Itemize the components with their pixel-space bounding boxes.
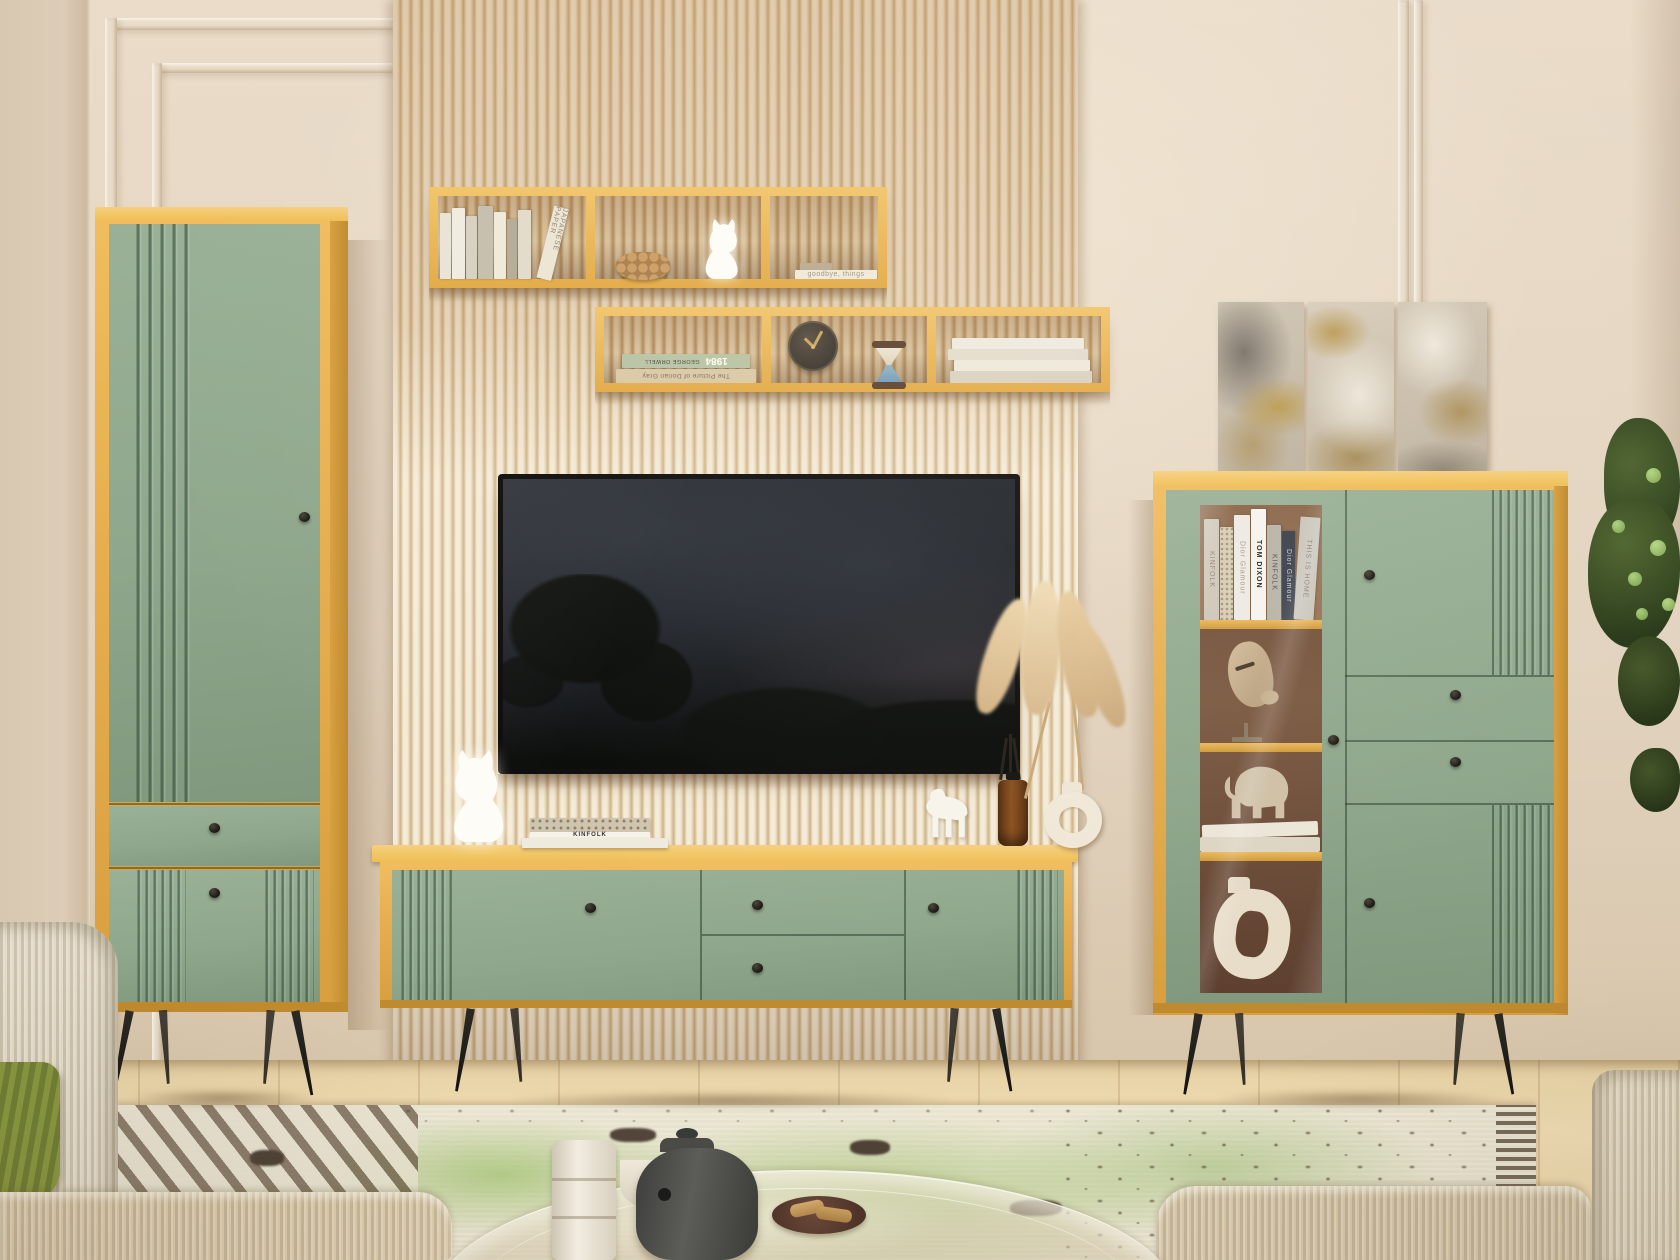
diffuser-bottle (998, 780, 1028, 846)
wall-molding (1414, 0, 1423, 305)
wooden-bead-ball (616, 252, 670, 280)
drawer-flutes (134, 870, 186, 1002)
shelf-shadow (429, 288, 887, 302)
bench-base (380, 1000, 1072, 1008)
display-cabinet-top (1153, 471, 1568, 486)
diffuser-cap (1006, 772, 1020, 780)
book-spine (452, 208, 465, 279)
cat-lamp (436, 744, 514, 848)
floor-shadow (420, 1088, 1040, 1112)
green-knit-throw (0, 1062, 60, 1200)
tall-cabinet-top (95, 207, 348, 221)
book-title: The Picture of Dorian Gray (642, 373, 730, 380)
flat-book (800, 263, 832, 270)
teapot-spout-hole (658, 1188, 671, 1201)
book-title: 1984 (706, 356, 728, 367)
book-spine (440, 213, 451, 279)
cup-stack (552, 1140, 616, 1260)
wall-molding (105, 18, 393, 30)
teapot (636, 1148, 758, 1260)
door-flutes (1496, 490, 1552, 675)
art-panel (1398, 302, 1487, 471)
tv-screen-reflection (503, 479, 1015, 769)
seam (1345, 740, 1554, 742)
display-cabinet-side (1554, 486, 1568, 1015)
book (522, 838, 668, 848)
rug-motif (850, 1140, 890, 1155)
glass-door-interior: KINFOLK Dior Glamour TOM DIXON KINFOLK D… (1200, 505, 1322, 993)
sofa-corner (1592, 1070, 1680, 1260)
tall-cabinet-base (95, 1002, 348, 1012)
plant-berry (1636, 608, 1648, 620)
bench-door-flutes (398, 870, 452, 1000)
seam (904, 870, 906, 1000)
floor-shadow (1160, 1086, 1560, 1112)
door-knob (299, 512, 310, 522)
hourglass-cap (872, 382, 906, 389)
snack-plate (772, 1196, 866, 1234)
rug-motif (250, 1150, 284, 1166)
seam (109, 867, 320, 869)
seam (109, 803, 320, 805)
stacked-book (948, 349, 1088, 360)
stacked-book (954, 360, 1090, 371)
glass-reflection (1200, 505, 1322, 993)
drawer-knob (1450, 757, 1461, 767)
book-dorian-gray: The Picture of Dorian Gray (616, 369, 756, 383)
flat-book: goodbye, things (795, 270, 877, 279)
book-1984: 1984 GEORGE ORWELL (622, 354, 750, 368)
ottoman-left (0, 1192, 452, 1260)
book-spine (518, 210, 531, 279)
book-spine (466, 216, 477, 279)
tall-cabinet-side (330, 214, 348, 1006)
book-spine (494, 212, 506, 279)
seam (702, 934, 904, 936)
plant-berry (1662, 598, 1675, 611)
wall-molding (152, 63, 393, 73)
door-knob (1364, 570, 1375, 580)
plant-foliage (1618, 636, 1680, 726)
door-knob (585, 903, 596, 913)
tv (498, 474, 1020, 774)
seam (1345, 675, 1554, 677)
drawer-flutes (262, 870, 314, 1002)
art-panel (1218, 302, 1304, 471)
cup-seam (552, 1216, 616, 1219)
tall-cabinet-door-flutes (130, 224, 196, 802)
cat-lamp (698, 216, 750, 282)
drawer-knob (752, 963, 763, 973)
seam (1345, 490, 1347, 1003)
drawer-knob (1450, 690, 1461, 700)
rug-motif (610, 1128, 656, 1142)
book-author: GEORGE ORWELL (644, 358, 699, 364)
art-panel (1308, 302, 1394, 471)
clock-center (811, 345, 815, 349)
shelf-shadow (595, 392, 1110, 405)
patterned-book (530, 818, 650, 832)
door-flutes (1496, 805, 1552, 1003)
drawer-knob (752, 900, 763, 910)
plant-berry (1628, 572, 1642, 586)
stacked-book (950, 371, 1092, 383)
horse-figurine (918, 782, 978, 848)
plant-berry (1650, 540, 1666, 556)
drawer-knob (209, 888, 220, 898)
book-spine (507, 219, 517, 279)
door-knob (1364, 898, 1375, 908)
book-title: goodbye, things (808, 271, 865, 278)
door-knob (928, 903, 939, 913)
plant-foliage (1630, 748, 1680, 812)
bench-door-flutes (1014, 870, 1058, 1000)
ring-vase (1044, 792, 1102, 848)
plant-berry (1612, 520, 1625, 533)
hourglass-cap (872, 341, 906, 348)
display-cabinet-base (1153, 1003, 1568, 1013)
seam (1492, 490, 1494, 675)
tall-cabinet-drawer (109, 806, 320, 866)
book-spine (478, 206, 493, 279)
glass-door-knob (1328, 735, 1339, 745)
ottoman-right (1156, 1186, 1592, 1260)
drawer-knob (209, 823, 220, 833)
seam (1492, 805, 1494, 1003)
plant-berry (1646, 468, 1661, 483)
wall-corner-left (0, 0, 90, 1075)
stacked-book (952, 338, 1084, 349)
floor-shadow (92, 1085, 352, 1111)
wall-molding (1398, 0, 1409, 305)
cookie (815, 1206, 852, 1224)
cabinet-wall-shadow (1128, 500, 1154, 1015)
tv-screen (503, 479, 1015, 769)
wall-clock (788, 321, 838, 371)
living-room-scene: JAPANESE PAPER goodbye, things 1984 GEOR… (0, 0, 1680, 1260)
cup-seam (552, 1178, 616, 1181)
